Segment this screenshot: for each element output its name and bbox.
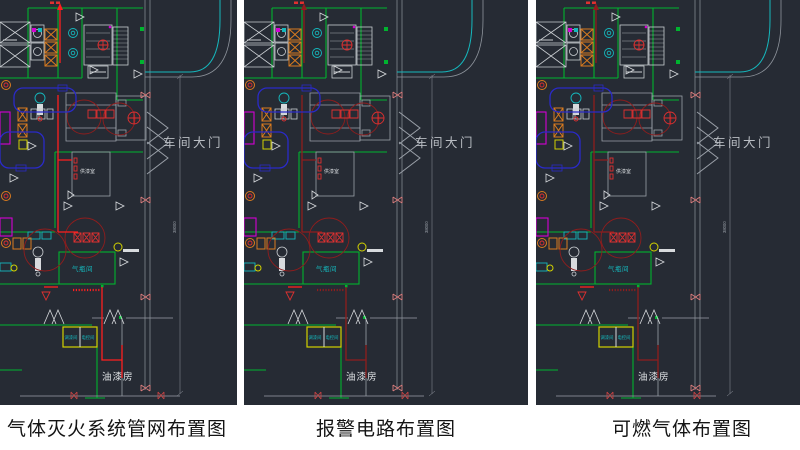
dimension-text: 38000 bbox=[172, 221, 177, 233]
drawing-background bbox=[536, 0, 800, 405]
drawing-background bbox=[0, 0, 237, 405]
workshop-gate-label: 车间大门 bbox=[163, 135, 223, 150]
panel-combustible-gas-plan: 38000 车间大门 气瓶间 油漆房 供漆室 调漆间 电控间 bbox=[536, 0, 800, 405]
dimension-text: 38000 bbox=[424, 221, 429, 233]
paint-room-label: 油漆房 bbox=[346, 371, 378, 383]
cad-floor-plan: 38000 车间大门 气瓶间 油漆房 供漆室 调漆间 电控间 bbox=[244, 0, 528, 405]
supply-room-label: 供漆室 bbox=[80, 168, 95, 175]
dimension-text: 38000 bbox=[722, 221, 727, 233]
electric-box-right-label: 电控间 bbox=[82, 334, 95, 341]
gas-cylinder-room-label: 气瓶间 bbox=[608, 264, 629, 273]
supply-room-label: 供漆室 bbox=[324, 168, 339, 175]
electric-box-right-label: 电控间 bbox=[618, 334, 631, 341]
paint-room-label: 油漆房 bbox=[638, 371, 670, 383]
panel-gas-suppression-plan: 38000 车间大门 气瓶间 油漆房 供漆室 调漆间 电控间 bbox=[0, 0, 237, 405]
cad-floor-plan: 38000 车间大门 气瓶间 油漆房 供漆室 调漆间 电控间 bbox=[536, 0, 800, 405]
gas-cylinder-room-label: 气瓶间 bbox=[72, 264, 93, 273]
drawing-sheet: 38000 车间大门 气瓶间 油漆房 供漆室 调漆间 电控间 bbox=[0, 0, 800, 450]
electric-box-left-label: 调漆间 bbox=[65, 334, 78, 341]
electric-box-left-label: 调漆间 bbox=[601, 334, 614, 341]
caption-gas-suppression: 气体灭火系统管网布置图 bbox=[0, 405, 244, 450]
workshop-gate-label: 车间大门 bbox=[713, 135, 773, 150]
cad-floor-plan: 38000 车间大门 气瓶间 油漆房 供漆室 调漆间 电控间 bbox=[0, 0, 237, 405]
supply-room-label: 供漆室 bbox=[616, 168, 631, 175]
panel-alarm-circuit-plan: 38000 车间大门 气瓶间 油漆房 供漆室 调漆间 电控间 bbox=[244, 0, 528, 405]
caption-combustible-gas: 可燃气体布置图 bbox=[536, 405, 800, 450]
caption-alarm-circuit: 报警电路布置图 bbox=[244, 405, 528, 450]
workshop-gate-label: 车间大门 bbox=[415, 135, 475, 150]
electric-box-left-label: 调漆间 bbox=[309, 334, 322, 341]
electric-box-right-label: 电控间 bbox=[326, 334, 339, 341]
paint-room-label: 油漆房 bbox=[102, 371, 134, 383]
gas-cylinder-room-label: 气瓶间 bbox=[316, 264, 337, 273]
